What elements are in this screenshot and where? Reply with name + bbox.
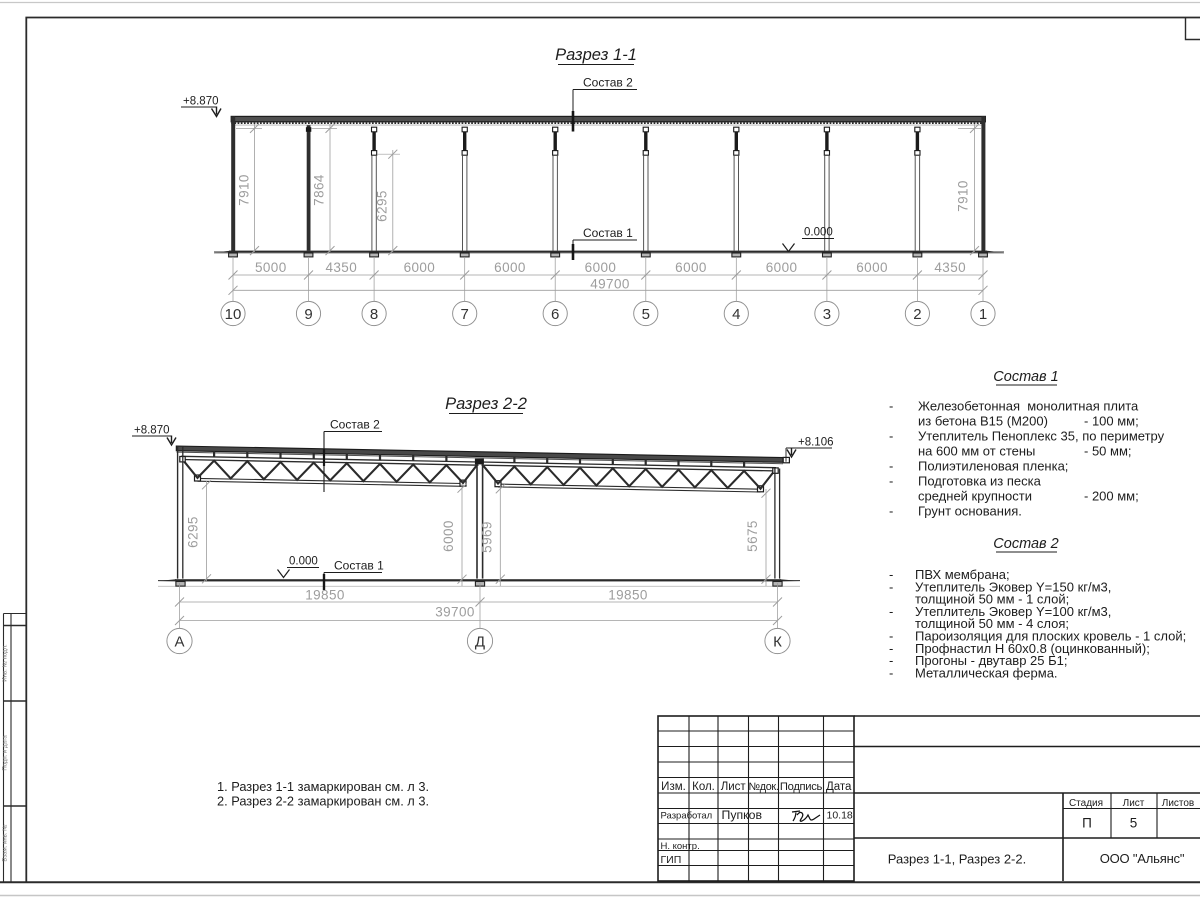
svg-text:ГИП: ГИП bbox=[661, 854, 682, 866]
svg-text:7: 7 bbox=[461, 306, 469, 323]
svg-text:1. Разрез 1-1 замаркирован см.: 1. Разрез 1-1 замаркирован см. л 3. bbox=[217, 779, 429, 794]
svg-text:+8.870: +8.870 bbox=[183, 96, 219, 108]
svg-text:Подпись: Подпись bbox=[780, 781, 823, 793]
svg-text:2. Разрез 2-2 замаркирован см.: 2. Разрез 2-2 замаркирован см. л 3. bbox=[217, 794, 429, 809]
svg-text:Состав 1: Состав 1 bbox=[993, 369, 1058, 385]
svg-text:Листов: Листов bbox=[1162, 798, 1195, 809]
svg-text:6000: 6000 bbox=[441, 520, 456, 552]
svg-text:2: 2 bbox=[913, 306, 921, 323]
svg-text:Разработал: Разработал bbox=[661, 811, 713, 822]
svg-text:6000: 6000 bbox=[766, 260, 798, 275]
svg-text:6000: 6000 bbox=[494, 260, 526, 275]
svg-text:№док.: №док. bbox=[748, 781, 778, 793]
svg-text:0.000: 0.000 bbox=[804, 227, 833, 239]
svg-text:Состав 2: Состав 2 bbox=[583, 76, 633, 90]
svg-text:39700: 39700 bbox=[435, 605, 475, 620]
svg-text:Состав 1: Состав 1 bbox=[583, 226, 633, 240]
svg-text:6000: 6000 bbox=[585, 260, 617, 275]
svg-text:Пупков: Пупков bbox=[722, 808, 763, 822]
svg-text:Стадия: Стадия bbox=[1069, 798, 1103, 809]
svg-text:Железобетонная монолитная пли: Железобетонная монолитная плита bbox=[918, 399, 1139, 414]
svg-text:-: - bbox=[889, 474, 893, 489]
svg-text:Дата: Дата bbox=[826, 781, 852, 793]
svg-text:19850: 19850 bbox=[305, 587, 345, 602]
svg-text:А: А bbox=[174, 633, 184, 650]
svg-text:7910: 7910 bbox=[956, 180, 971, 212]
svg-text:Кол.: Кол. bbox=[692, 781, 715, 793]
svg-text:Подготовка из песка: Подготовка из песка bbox=[918, 474, 1042, 489]
svg-text:-: - bbox=[889, 429, 893, 444]
svg-text:-: - bbox=[889, 399, 893, 414]
svg-text:7910: 7910 bbox=[237, 174, 252, 206]
svg-text:10: 10 bbox=[225, 306, 242, 323]
svg-text:9: 9 bbox=[304, 306, 312, 323]
svg-text:+8.870: +8.870 bbox=[134, 425, 170, 437]
svg-text:- 50 мм;: - 50 мм; bbox=[1084, 444, 1132, 459]
svg-text:4350: 4350 bbox=[934, 260, 966, 275]
svg-text:0.000: 0.000 bbox=[289, 556, 318, 568]
svg-text:Взам. инв. №: Взам. инв. № bbox=[2, 824, 9, 861]
svg-text:6: 6 bbox=[551, 306, 559, 323]
svg-text:- 100 мм;: - 100 мм; bbox=[1084, 414, 1139, 429]
svg-text:19850: 19850 bbox=[608, 587, 648, 602]
svg-text:3: 3 bbox=[823, 306, 831, 323]
svg-text:10.18: 10.18 bbox=[827, 810, 853, 822]
svg-text:-: - bbox=[889, 665, 893, 680]
svg-text:7864: 7864 bbox=[312, 174, 327, 206]
svg-text:6295: 6295 bbox=[374, 190, 389, 222]
svg-text:Лист: Лист bbox=[721, 781, 747, 793]
svg-text:Разрез 1-1, Разрез 2-2.: Разрез 1-1, Разрез 2-2. bbox=[888, 851, 1026, 866]
svg-text:8: 8 bbox=[370, 306, 378, 323]
svg-text:Разрез 1-1: Разрез 1-1 bbox=[555, 46, 637, 64]
svg-text:5: 5 bbox=[642, 306, 650, 323]
svg-text:Н. контр.: Н. контр. bbox=[661, 841, 700, 852]
svg-text:5: 5 bbox=[1130, 816, 1138, 831]
svg-text:Грунт основания.: Грунт основания. bbox=[918, 504, 1022, 519]
svg-text:Полиэтиленовая пленка;: Полиэтиленовая пленка; bbox=[918, 459, 1068, 474]
svg-text:-: - bbox=[889, 459, 893, 474]
svg-text:-: - bbox=[889, 504, 893, 519]
svg-text:Металлическая ферма.: Металлическая ферма. bbox=[915, 665, 1058, 680]
svg-text:6295: 6295 bbox=[186, 516, 201, 548]
svg-text:1: 1 bbox=[979, 306, 987, 323]
svg-text:-: - bbox=[889, 579, 893, 594]
svg-text:Лист: Лист bbox=[1123, 798, 1145, 809]
svg-text:-: - bbox=[889, 604, 893, 619]
svg-text:из бетона В15 (М200): из бетона В15 (М200) bbox=[918, 414, 1048, 429]
svg-text:+8.106: +8.106 bbox=[798, 437, 834, 449]
svg-text:Д: Д bbox=[475, 633, 485, 650]
svg-text:5969: 5969 bbox=[480, 521, 495, 553]
svg-text:Утеплитель Пеноплекс 35, по пе: Утеплитель Пеноплекс 35, по периметру bbox=[918, 429, 1165, 444]
svg-text:4: 4 bbox=[732, 306, 740, 323]
svg-text:Инв. № подл.: Инв. № подл. bbox=[2, 644, 9, 682]
svg-text:Состав 2: Состав 2 bbox=[993, 536, 1058, 552]
svg-text:П: П bbox=[1082, 816, 1092, 831]
svg-text:Разрез 2-2: Разрез 2-2 bbox=[445, 395, 527, 413]
svg-text:ООО "Альянс": ООО "Альянс" bbox=[1100, 851, 1185, 866]
svg-text:4350: 4350 bbox=[325, 260, 357, 275]
svg-text:на 600 мм от стены: на 600 мм от стены bbox=[918, 444, 1035, 459]
svg-text:средней крупности: средней крупности bbox=[918, 489, 1032, 504]
svg-text:Состав 1: Состав 1 bbox=[334, 559, 384, 573]
svg-text:Состав 2: Состав 2 bbox=[330, 418, 380, 432]
svg-text:К: К bbox=[773, 633, 782, 650]
svg-text:6000: 6000 bbox=[856, 260, 888, 275]
svg-text:6000: 6000 bbox=[404, 260, 436, 275]
svg-text:6000: 6000 bbox=[675, 260, 707, 275]
svg-text:5675: 5675 bbox=[745, 520, 760, 552]
svg-text:- 200 мм;: - 200 мм; bbox=[1084, 489, 1139, 504]
svg-text:Подп. и дата: Подп. и дата bbox=[3, 735, 9, 771]
svg-text:49700: 49700 bbox=[590, 277, 630, 292]
svg-text:Изм.: Изм. bbox=[661, 781, 686, 793]
svg-text:5000: 5000 bbox=[255, 260, 287, 275]
